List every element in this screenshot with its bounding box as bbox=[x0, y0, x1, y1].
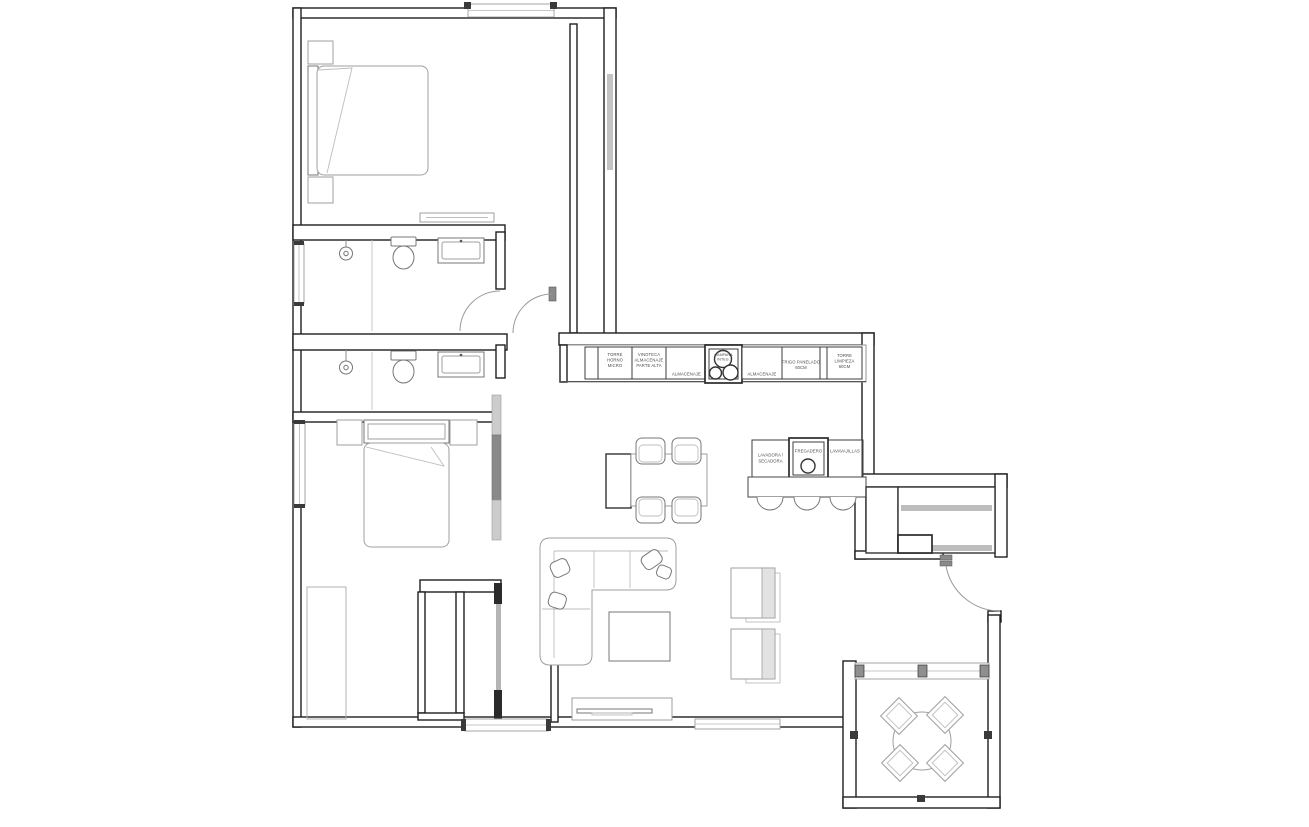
wardrobe-partition bbox=[570, 24, 577, 333]
wall-vestibule-top bbox=[862, 474, 1007, 487]
nightstand bbox=[337, 420, 362, 445]
label-torre-3: MICRO bbox=[608, 363, 623, 368]
label-campana-2: INTEG. bbox=[717, 358, 730, 362]
cabinet-divider bbox=[820, 347, 827, 379]
bar-stool bbox=[757, 497, 783, 510]
window-bottom-1 bbox=[461, 719, 551, 731]
bar-stool bbox=[794, 497, 820, 510]
entry-bench bbox=[898, 535, 932, 553]
sink-drain-icon bbox=[801, 459, 815, 473]
entry-door-arc bbox=[946, 566, 1000, 611]
hallway bbox=[513, 287, 556, 333]
bed-headboard-inner bbox=[368, 424, 445, 439]
floor-plan-page: TORRE HORNO MICRO VINOTECA ALMACENAJE PA… bbox=[0, 0, 1309, 827]
label-vinoteca-1: VINOTECA bbox=[638, 352, 660, 357]
wardrobe-column-right bbox=[456, 592, 464, 713]
label-fregadero: FREGADERO bbox=[795, 449, 823, 454]
entry-door bbox=[940, 555, 1000, 611]
wall-kitchen-top bbox=[559, 333, 874, 345]
terrace-anchor-bottom bbox=[917, 795, 925, 802]
wall-left bbox=[293, 8, 301, 727]
toilet-bowl bbox=[393, 360, 414, 383]
wall-stub-dressing-2 bbox=[494, 690, 502, 722]
wall-bath1-right bbox=[496, 232, 505, 289]
label-frigo-1: FRIGO PANELADO bbox=[782, 360, 821, 365]
bar-stool bbox=[830, 497, 856, 510]
wall-master-east bbox=[604, 8, 616, 340]
label-vinoteca-3: PARTE ALTA bbox=[636, 363, 661, 368]
armchair-2 bbox=[731, 629, 780, 683]
wall-bath-divider bbox=[293, 334, 507, 350]
bedroom2-sliding-door bbox=[492, 395, 501, 540]
wardrobe-column-left bbox=[418, 592, 425, 713]
label-torre-2: HORNO bbox=[607, 358, 624, 363]
label-limpieza-1: TORRE bbox=[837, 353, 852, 358]
tv-bench bbox=[572, 698, 672, 720]
nightstand bbox=[450, 420, 477, 445]
bed-mattress bbox=[317, 66, 428, 175]
kitchen-island: LAVADORA / SECADORA FREGADERO LAVAVAJILL… bbox=[748, 438, 866, 510]
bath1-door-arc bbox=[460, 291, 500, 331]
wall-cavity-gray bbox=[607, 74, 613, 170]
label-almacenaje-2: ALMACENAJE bbox=[748, 372, 777, 377]
toilet-bowl bbox=[393, 246, 414, 269]
label-lavavajillas: LAVAVAJILLAS bbox=[830, 449, 860, 454]
sink-basin bbox=[442, 356, 480, 373]
bathroom-2 bbox=[340, 350, 485, 410]
sink-basin bbox=[442, 242, 480, 259]
kitchen: TORRE HORNO MICRO VINOTECA ALMACENAJE PA… bbox=[560, 345, 866, 383]
counter-end-panel bbox=[560, 345, 567, 382]
living-dining bbox=[540, 438, 780, 720]
burner-icon bbox=[710, 367, 722, 379]
shower-head-center bbox=[344, 365, 348, 369]
dressing-room bbox=[307, 587, 346, 719]
wall-vestibule-left bbox=[855, 487, 866, 559]
wall-vestibule-right bbox=[995, 474, 1007, 557]
wall-bath2-right bbox=[496, 345, 505, 378]
window-bath1 bbox=[294, 241, 304, 306]
label-torre-1: TORRE bbox=[607, 352, 622, 357]
label-campana-1: CAMPANA bbox=[714, 353, 733, 357]
label-limpieza-2: LIMPIEZA bbox=[835, 359, 855, 364]
wall-dressing-top bbox=[420, 580, 501, 592]
master-bedroom bbox=[308, 41, 494, 222]
terrace-anchor-right bbox=[984, 731, 992, 739]
shower-head-center bbox=[344, 251, 348, 255]
bathroom-1 bbox=[340, 237, 501, 331]
label-vinoteca-2: ALMACENAJE bbox=[635, 358, 664, 363]
coffee-table bbox=[609, 612, 670, 661]
nightstand bbox=[308, 41, 333, 64]
nightstand bbox=[308, 177, 333, 203]
sideboard bbox=[606, 454, 631, 508]
window-bedroom2 bbox=[294, 420, 305, 508]
wall-top bbox=[293, 8, 616, 18]
terrace-anchor-left bbox=[850, 731, 858, 739]
wardrobe-bottom bbox=[418, 713, 464, 720]
armchair-1 bbox=[731, 568, 780, 622]
faucet-icon bbox=[460, 354, 463, 357]
burner-icon bbox=[723, 365, 738, 380]
island-counter bbox=[748, 477, 866, 497]
floor-plan-drawing: TORRE HORNO MICRO VINOTECA ALMACENAJE PA… bbox=[0, 0, 1309, 827]
entry-cabinet bbox=[866, 487, 898, 553]
bed-mattress bbox=[364, 443, 449, 547]
label-frigo-2: 60CM bbox=[795, 365, 807, 370]
terrace bbox=[881, 697, 964, 782]
wall-stub-dressing-1 bbox=[494, 583, 502, 604]
terrace-glazing bbox=[855, 663, 989, 679]
sliding-door-dressing bbox=[496, 604, 501, 690]
faucet-icon bbox=[460, 240, 463, 243]
hall-door-arc bbox=[513, 294, 552, 333]
window-top bbox=[464, 2, 557, 17]
wardrobe-shelf bbox=[901, 505, 992, 511]
wall-terrace-right bbox=[988, 615, 1000, 808]
cabinet-filler bbox=[585, 347, 598, 379]
toilet-cistern bbox=[391, 351, 416, 360]
label-lavadora-2: SECADORA bbox=[758, 459, 782, 464]
label-lavadora-1: LAVADORA / bbox=[758, 453, 784, 458]
label-almacenaje-1: ALMACENAJE bbox=[672, 372, 701, 377]
tv-icon bbox=[577, 709, 652, 713]
entry-vestibule bbox=[866, 487, 1000, 611]
toilet-cistern bbox=[391, 237, 416, 246]
label-limpieza-3: 60CM bbox=[839, 364, 851, 369]
closet bbox=[307, 587, 346, 719]
window-bottom-2 bbox=[695, 719, 780, 729]
island-lavavajillas bbox=[828, 440, 862, 477]
